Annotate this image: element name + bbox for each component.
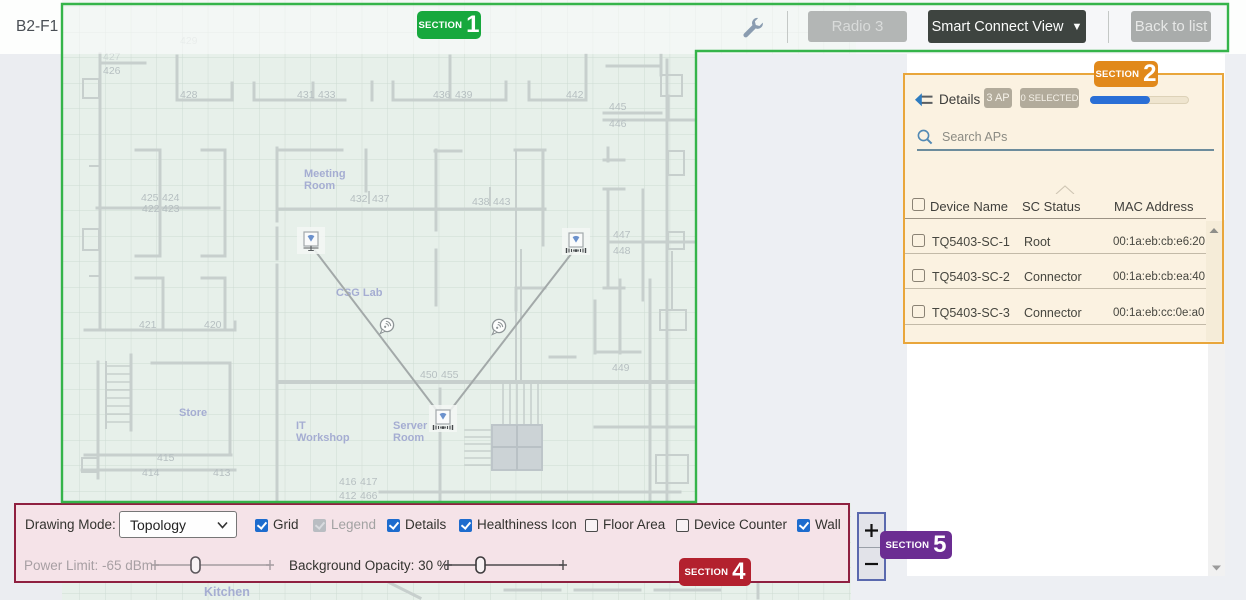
svg-text:439: 439 [455, 89, 473, 101]
svg-text:432: 432 [350, 193, 368, 205]
svg-text:428: 428 [180, 89, 198, 101]
svg-text:IT: IT [296, 420, 306, 432]
svg-text:415: 415 [157, 452, 175, 464]
svg-text:423: 423 [162, 203, 180, 215]
svg-text:Room: Room [393, 432, 424, 444]
svg-text:437: 437 [372, 193, 390, 205]
svg-text:Room: Room [304, 180, 335, 192]
svg-text:413: 413 [213, 467, 231, 479]
svg-text:Store: Store [179, 407, 207, 419]
svg-text:416: 416 [339, 476, 357, 488]
svg-text:412: 412 [339, 490, 357, 502]
svg-text:448: 448 [613, 245, 631, 257]
svg-text:Server: Server [393, 420, 428, 432]
svg-text:420: 420 [204, 319, 222, 331]
svg-text:431: 431 [297, 89, 315, 101]
svg-text:442: 442 [566, 89, 584, 101]
svg-text:Meeting: Meeting [304, 168, 346, 180]
svg-text:436: 436 [433, 89, 451, 101]
svg-text:450: 450 [420, 369, 438, 381]
svg-text:443: 443 [493, 196, 511, 208]
svg-text:422: 422 [142, 203, 160, 215]
svg-text:466: 466 [360, 490, 378, 502]
svg-text:433: 433 [318, 89, 336, 101]
svg-text:455: 455 [441, 369, 459, 381]
svg-text:414: 414 [142, 467, 160, 479]
svg-text:421: 421 [139, 319, 157, 331]
svg-text:Kitchen: Kitchen [204, 585, 250, 599]
svg-text:438: 438 [472, 196, 490, 208]
svg-text:426: 426 [103, 65, 121, 77]
svg-text:446: 446 [609, 118, 627, 130]
svg-text:447: 447 [613, 229, 631, 241]
svg-text:445: 445 [609, 101, 627, 113]
svg-text:417: 417 [360, 476, 378, 488]
svg-text:Workshop: Workshop [296, 432, 350, 444]
svg-text:449: 449 [612, 362, 630, 374]
